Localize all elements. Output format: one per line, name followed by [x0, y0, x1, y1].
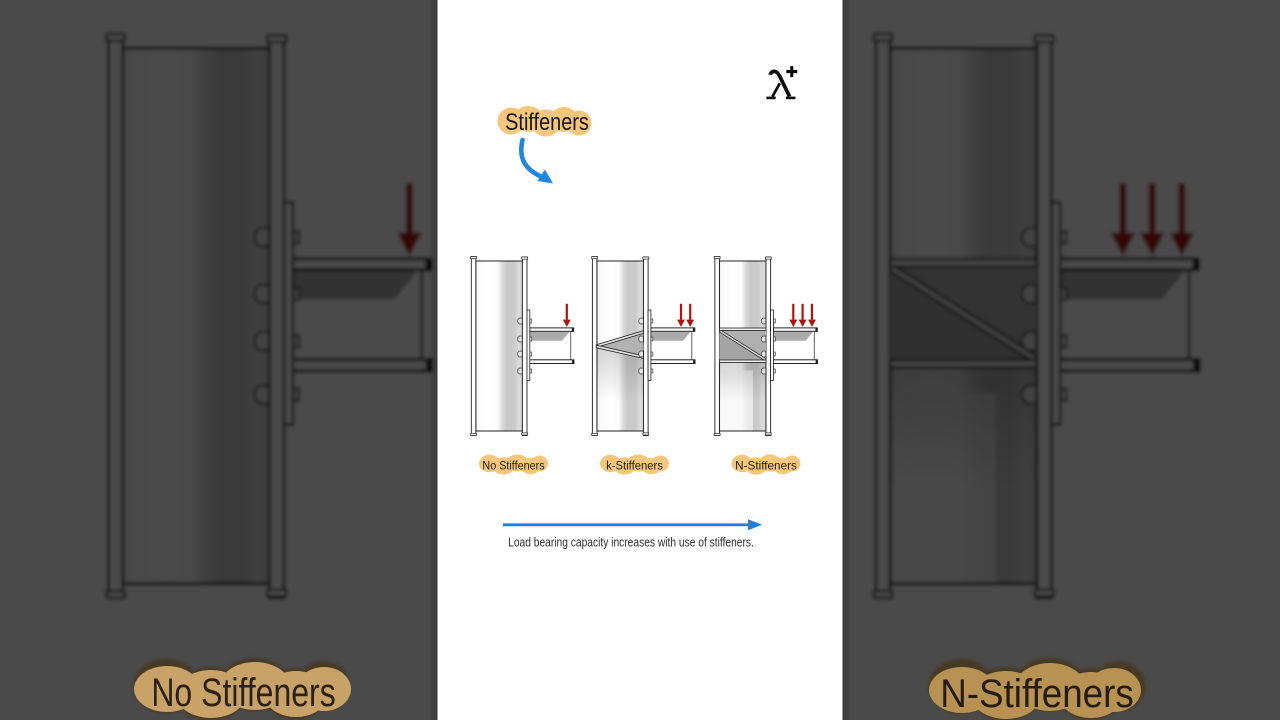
svg-text:N-Stiffeners: N-Stiffeners — [940, 672, 1134, 717]
svg-text:No Stiffeners: No Stiffeners — [151, 670, 335, 715]
